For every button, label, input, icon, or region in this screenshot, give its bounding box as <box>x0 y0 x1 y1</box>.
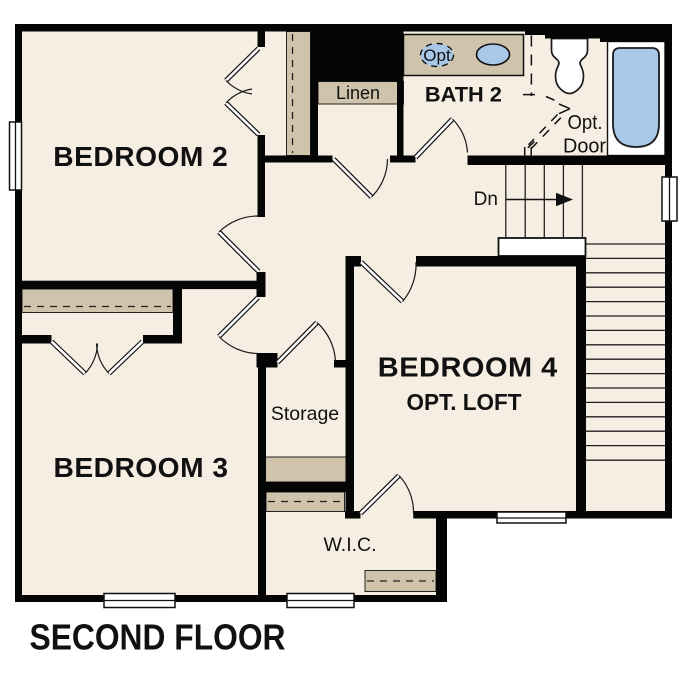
svg-text:Linen: Linen <box>336 83 380 103</box>
svg-text:Opt: Opt <box>423 46 451 65</box>
svg-text:Door: Door <box>563 136 606 158</box>
svg-text:BEDROOM 4: BEDROOM 4 <box>378 352 558 383</box>
svg-text:Dn: Dn <box>474 189 498 210</box>
svg-text:SECOND FLOOR: SECOND FLOOR <box>30 617 286 658</box>
svg-text:Opt.: Opt. <box>568 112 603 134</box>
svg-text:BATH 2: BATH 2 <box>425 83 502 107</box>
svg-text:Storage: Storage <box>271 403 339 425</box>
svg-text:OPT. LOFT: OPT. LOFT <box>407 389 523 415</box>
svg-text:W.I.C.: W.I.C. <box>323 534 376 556</box>
svg-text:BEDROOM 2: BEDROOM 2 <box>53 141 228 172</box>
svg-text:BEDROOM 3: BEDROOM 3 <box>54 452 229 483</box>
